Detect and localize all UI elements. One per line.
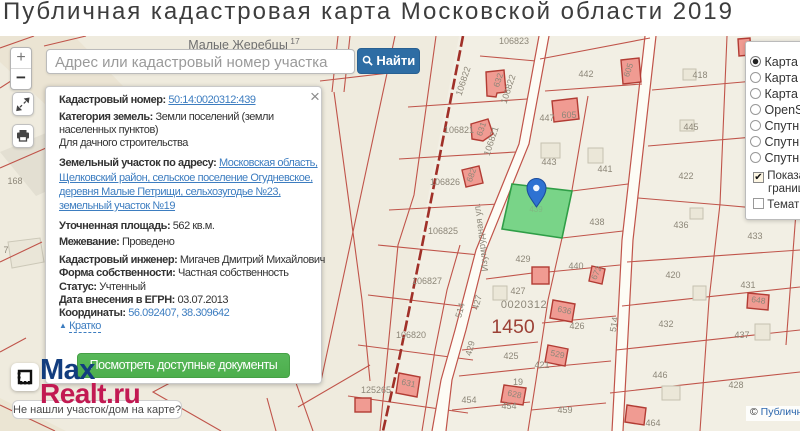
svg-text:0020312: 0020312	[501, 299, 547, 311]
svg-text:441: 441	[597, 164, 612, 174]
svg-text:19: 19	[513, 377, 523, 387]
svg-text:446: 446	[652, 370, 667, 380]
svg-text:106827: 106827	[412, 276, 442, 286]
svg-text:440: 440	[568, 261, 583, 271]
svg-text:432: 432	[658, 319, 673, 329]
svg-text:447: 447	[539, 113, 554, 123]
svg-text:454: 454	[461, 395, 476, 405]
svg-text:437: 437	[734, 330, 749, 340]
svg-text:168: 168	[7, 176, 22, 186]
svg-text:429: 429	[515, 254, 530, 264]
svg-text:459: 459	[557, 405, 572, 415]
svg-text:464: 464	[645, 418, 660, 428]
svg-text:420: 420	[665, 270, 680, 280]
svg-text:106826: 106826	[430, 177, 460, 187]
svg-text:17: 17	[290, 36, 300, 46]
svg-text:426: 426	[569, 321, 584, 331]
svg-text:125265: 125265	[361, 385, 391, 395]
svg-text:442: 442	[578, 69, 593, 79]
svg-text:438: 438	[589, 217, 604, 227]
svg-text:427: 427	[510, 286, 525, 296]
svg-text:7: 7	[3, 245, 8, 255]
svg-text:436: 436	[673, 220, 688, 230]
svg-text:106821: 106821	[444, 125, 474, 135]
svg-text:648: 648	[751, 294, 767, 306]
svg-text:1450: 1450	[491, 316, 535, 338]
svg-text:454: 454	[501, 401, 516, 411]
svg-text:422: 422	[678, 171, 693, 181]
svg-text:106823: 106823	[499, 36, 529, 46]
svg-text:433: 433	[747, 231, 762, 241]
svg-text:605: 605	[561, 110, 576, 120]
svg-text:106820: 106820	[396, 330, 426, 340]
svg-text:421: 421	[534, 360, 549, 370]
svg-text:428: 428	[728, 380, 743, 390]
svg-text:431: 431	[740, 280, 755, 290]
svg-text:445: 445	[683, 122, 698, 132]
svg-text:106825: 106825	[428, 226, 458, 236]
svg-text:418: 418	[692, 70, 707, 80]
svg-text:443: 443	[541, 157, 556, 167]
svg-text:425: 425	[503, 351, 518, 361]
